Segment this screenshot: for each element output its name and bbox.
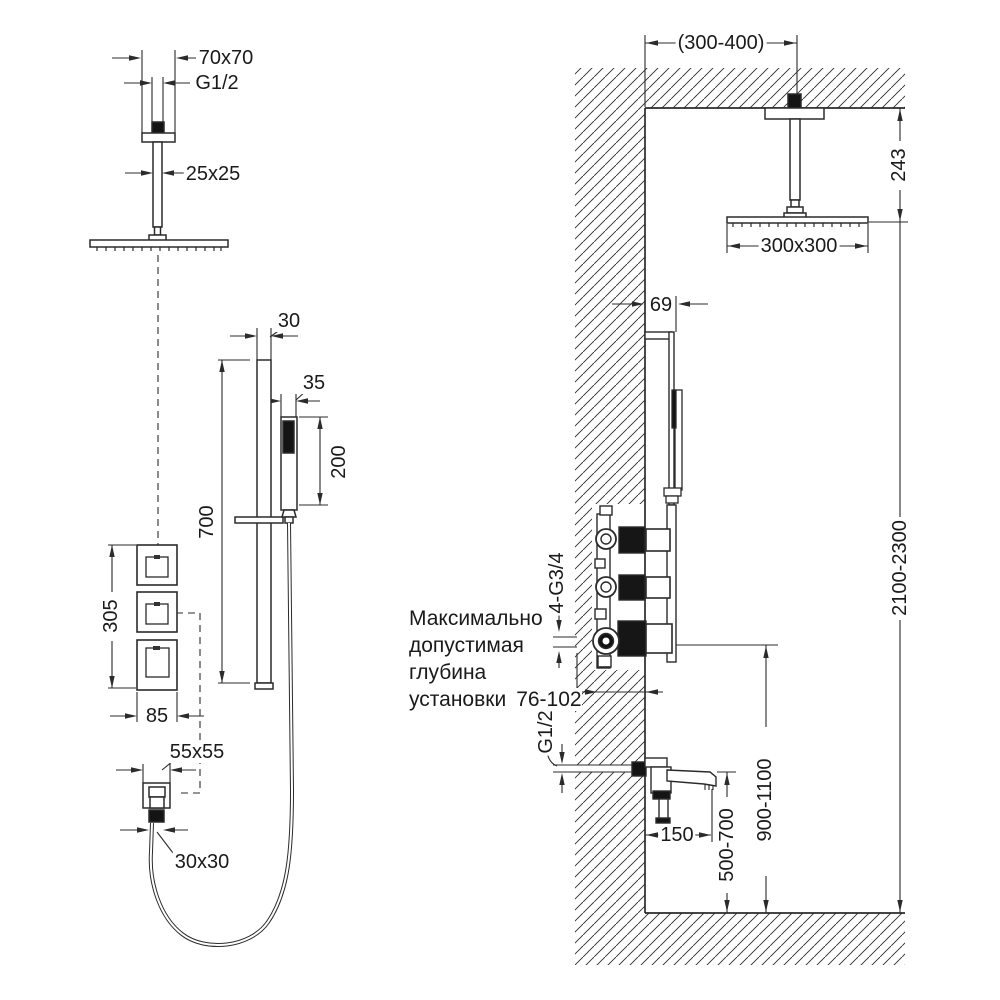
dim-spout-reach-label: 150 — [658, 824, 695, 846]
dim-head-size-label: 300x300 — [759, 235, 840, 257]
dim-spout-height-label: 500-700 — [716, 806, 738, 883]
dim-install-depth-label: 76-102 — [516, 688, 581, 711]
ceiling-shower-arm-side — [727, 94, 868, 227]
slide-bar-front — [235, 360, 283, 689]
dim-ports-thread-label: 4-G3/4 — [546, 550, 568, 615]
dim-bar-length-label: 700 — [196, 503, 218, 540]
wall-section-hatch — [575, 68, 905, 965]
install-depth-note-line2: допустимая — [409, 634, 524, 657]
dim-arm-profile-label: 25x25 — [184, 163, 243, 185]
supply-pipe — [632, 762, 646, 776]
bath-spout-side — [645, 758, 716, 823]
dim-head-drop-label: 243 — [888, 146, 910, 183]
dim-head-flange-label: 70x70 — [197, 47, 256, 69]
hand-shower-front — [281, 417, 297, 523]
wall-outlet-front — [143, 783, 170, 822]
dim-bar-width-label: 30 — [276, 310, 302, 332]
ceiling-shower-arm-front — [142, 122, 175, 243]
dim-head-thread-label: G1/2 — [193, 72, 240, 94]
dim-panel-width-label: 85 — [144, 705, 170, 727]
install-depth-note-line4: установки76-102 — [409, 688, 582, 711]
dim-room-height-label: 2100-2300 — [889, 518, 911, 618]
install-depth-note-line3: глубина — [409, 661, 486, 684]
thermostat-valve-side — [593, 506, 672, 668]
control-panel-front — [137, 545, 177, 690]
dim-outlet-conn-label: 30x30 — [173, 851, 232, 873]
dim-valve-height-label: 900-1100 — [754, 756, 776, 843]
extension-lines — [108, 35, 908, 842]
dim-hand-length-label: 200 — [328, 443, 350, 480]
dim-hand-width-label: 35 — [301, 372, 327, 394]
dim-panel-height-label: 305 — [100, 597, 122, 634]
dim-bar-offset-label: 69 — [648, 294, 674, 316]
drawing-linework — [0, 0, 1000, 1000]
install-depth-note-word: установки — [409, 688, 506, 711]
dim-ceiling-offset-label: (300-400) — [676, 32, 767, 54]
install-depth-note-line1: Максимально — [409, 607, 543, 630]
dim-spout-thread-label: G1/2 — [535, 708, 557, 755]
dim-outlet-plate-label: 55x55 — [168, 741, 227, 763]
shower-head-front — [90, 240, 228, 251]
technical-drawing: 70x70 G1/2 25x25 30 35 700 200 305 85 55… — [0, 0, 1000, 1000]
